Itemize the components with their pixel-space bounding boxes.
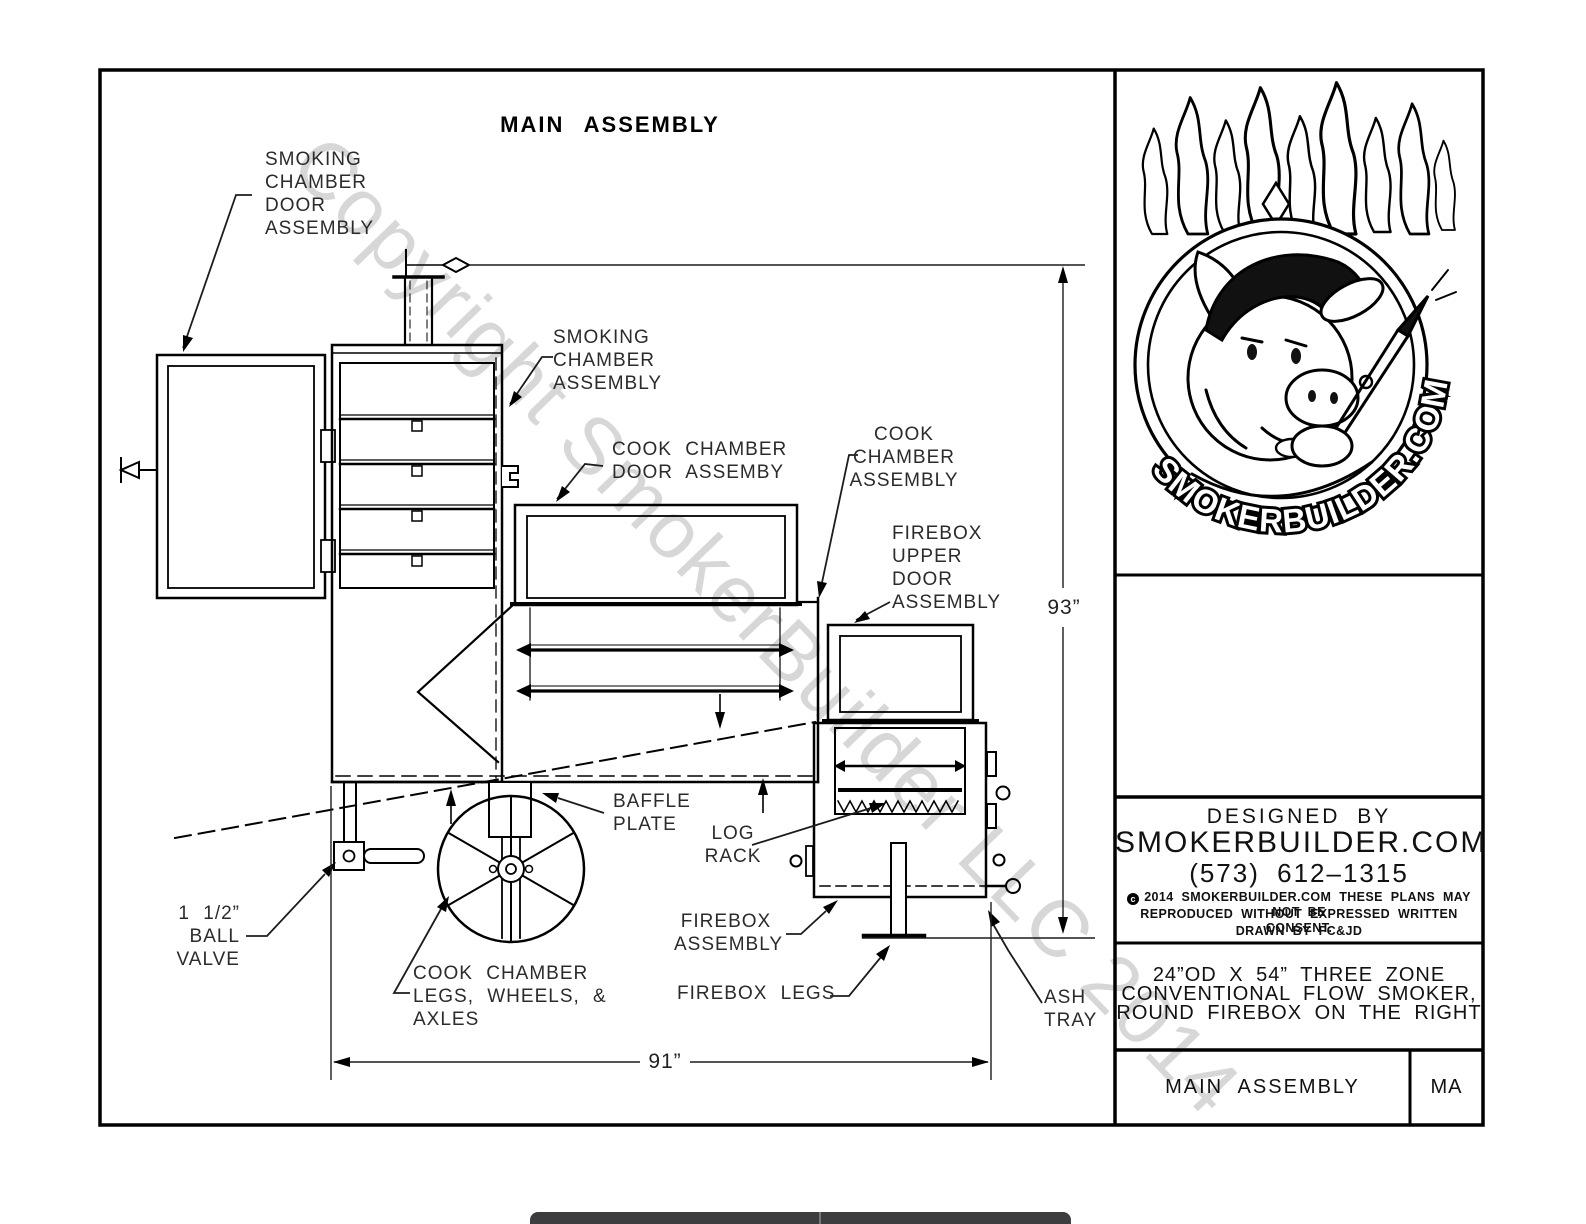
label-firebox-upper-door-assembly: FIREBOXUPPER DOORASSEMBLY [892,522,1001,614]
label-cook-chamber-assembly: COOKCHAMBER ASSEMBLY [848,423,960,492]
flames-icon [1143,83,1455,234]
label-cook-chamber-legs: COOK CHAMBERLEGS, WHEELS, & AXLES [413,962,607,1031]
label-firebox-assembly: FIREBOXASSEMBLY [674,910,778,956]
titleblock-drawn-by: DRAWN BY FC&JD [1115,924,1483,938]
wheel-shape [438,782,584,942]
titleblock-company: SMOKERBUILDER.COM [1115,826,1483,860]
label-cook-chamber-door-assembly: COOK CHAMBERDOOR ASSEMBY [612,438,787,484]
firebox-upper-door-shape [824,625,977,721]
label-ball-valve: 1 1/2”BALL VALVE [160,902,240,971]
label-ash-tray: ASHTRAY [1044,986,1097,1032]
blueprint-page: Copyright SmokerBuilder LLC 2014 [0,0,1586,1224]
dock-separator [819,1212,821,1224]
dimension-height: 93” [1036,596,1092,620]
label-log-rack: LOGRACK [703,822,763,868]
cook-chamber-door-shape [512,505,800,605]
smoking-chamber-shape [332,345,518,782]
firebox-legs-shape [864,843,924,936]
drawing-title: MAIN ASSEMBLY [350,112,870,138]
dimension-width: 91” [642,1050,688,1074]
bottom-dock-bar[interactable] [530,1212,1071,1224]
chimney-shape [394,250,469,345]
label-firebox-legs: FIREBOX LEGS [677,982,835,1005]
cook-chamber-shape [516,598,818,782]
titleblock-description-line3: ROUND FIREBOX ON THE RIGHT [1115,1004,1483,1023]
label-smoking-chamber-assembly: SMOKINGCHAMBER ASSEMBLY [553,326,662,395]
label-smoking-chamber-door-assembly: SMOKINGCHAMBER DOORASSEMBLY [265,148,374,240]
smokerbuilder-logo: SMOKERBUILDER.COM [1135,83,1456,540]
copyright-icon: c [1127,893,1139,905]
label-baffle-plate: BAFFLEPLATE [613,790,691,836]
dimension-lines [331,265,1095,1080]
drawing-canvas: SMOKERBUILDER.COM [0,0,1586,1224]
titleblock-sheet-code: MA [1410,1076,1483,1099]
smoking-chamber-door-shape [121,355,335,598]
titleblock-sheet-title: MAIN ASSEMBLY [1115,1076,1410,1099]
titleblock-phone: (573) 612–1315 [1115,858,1483,889]
